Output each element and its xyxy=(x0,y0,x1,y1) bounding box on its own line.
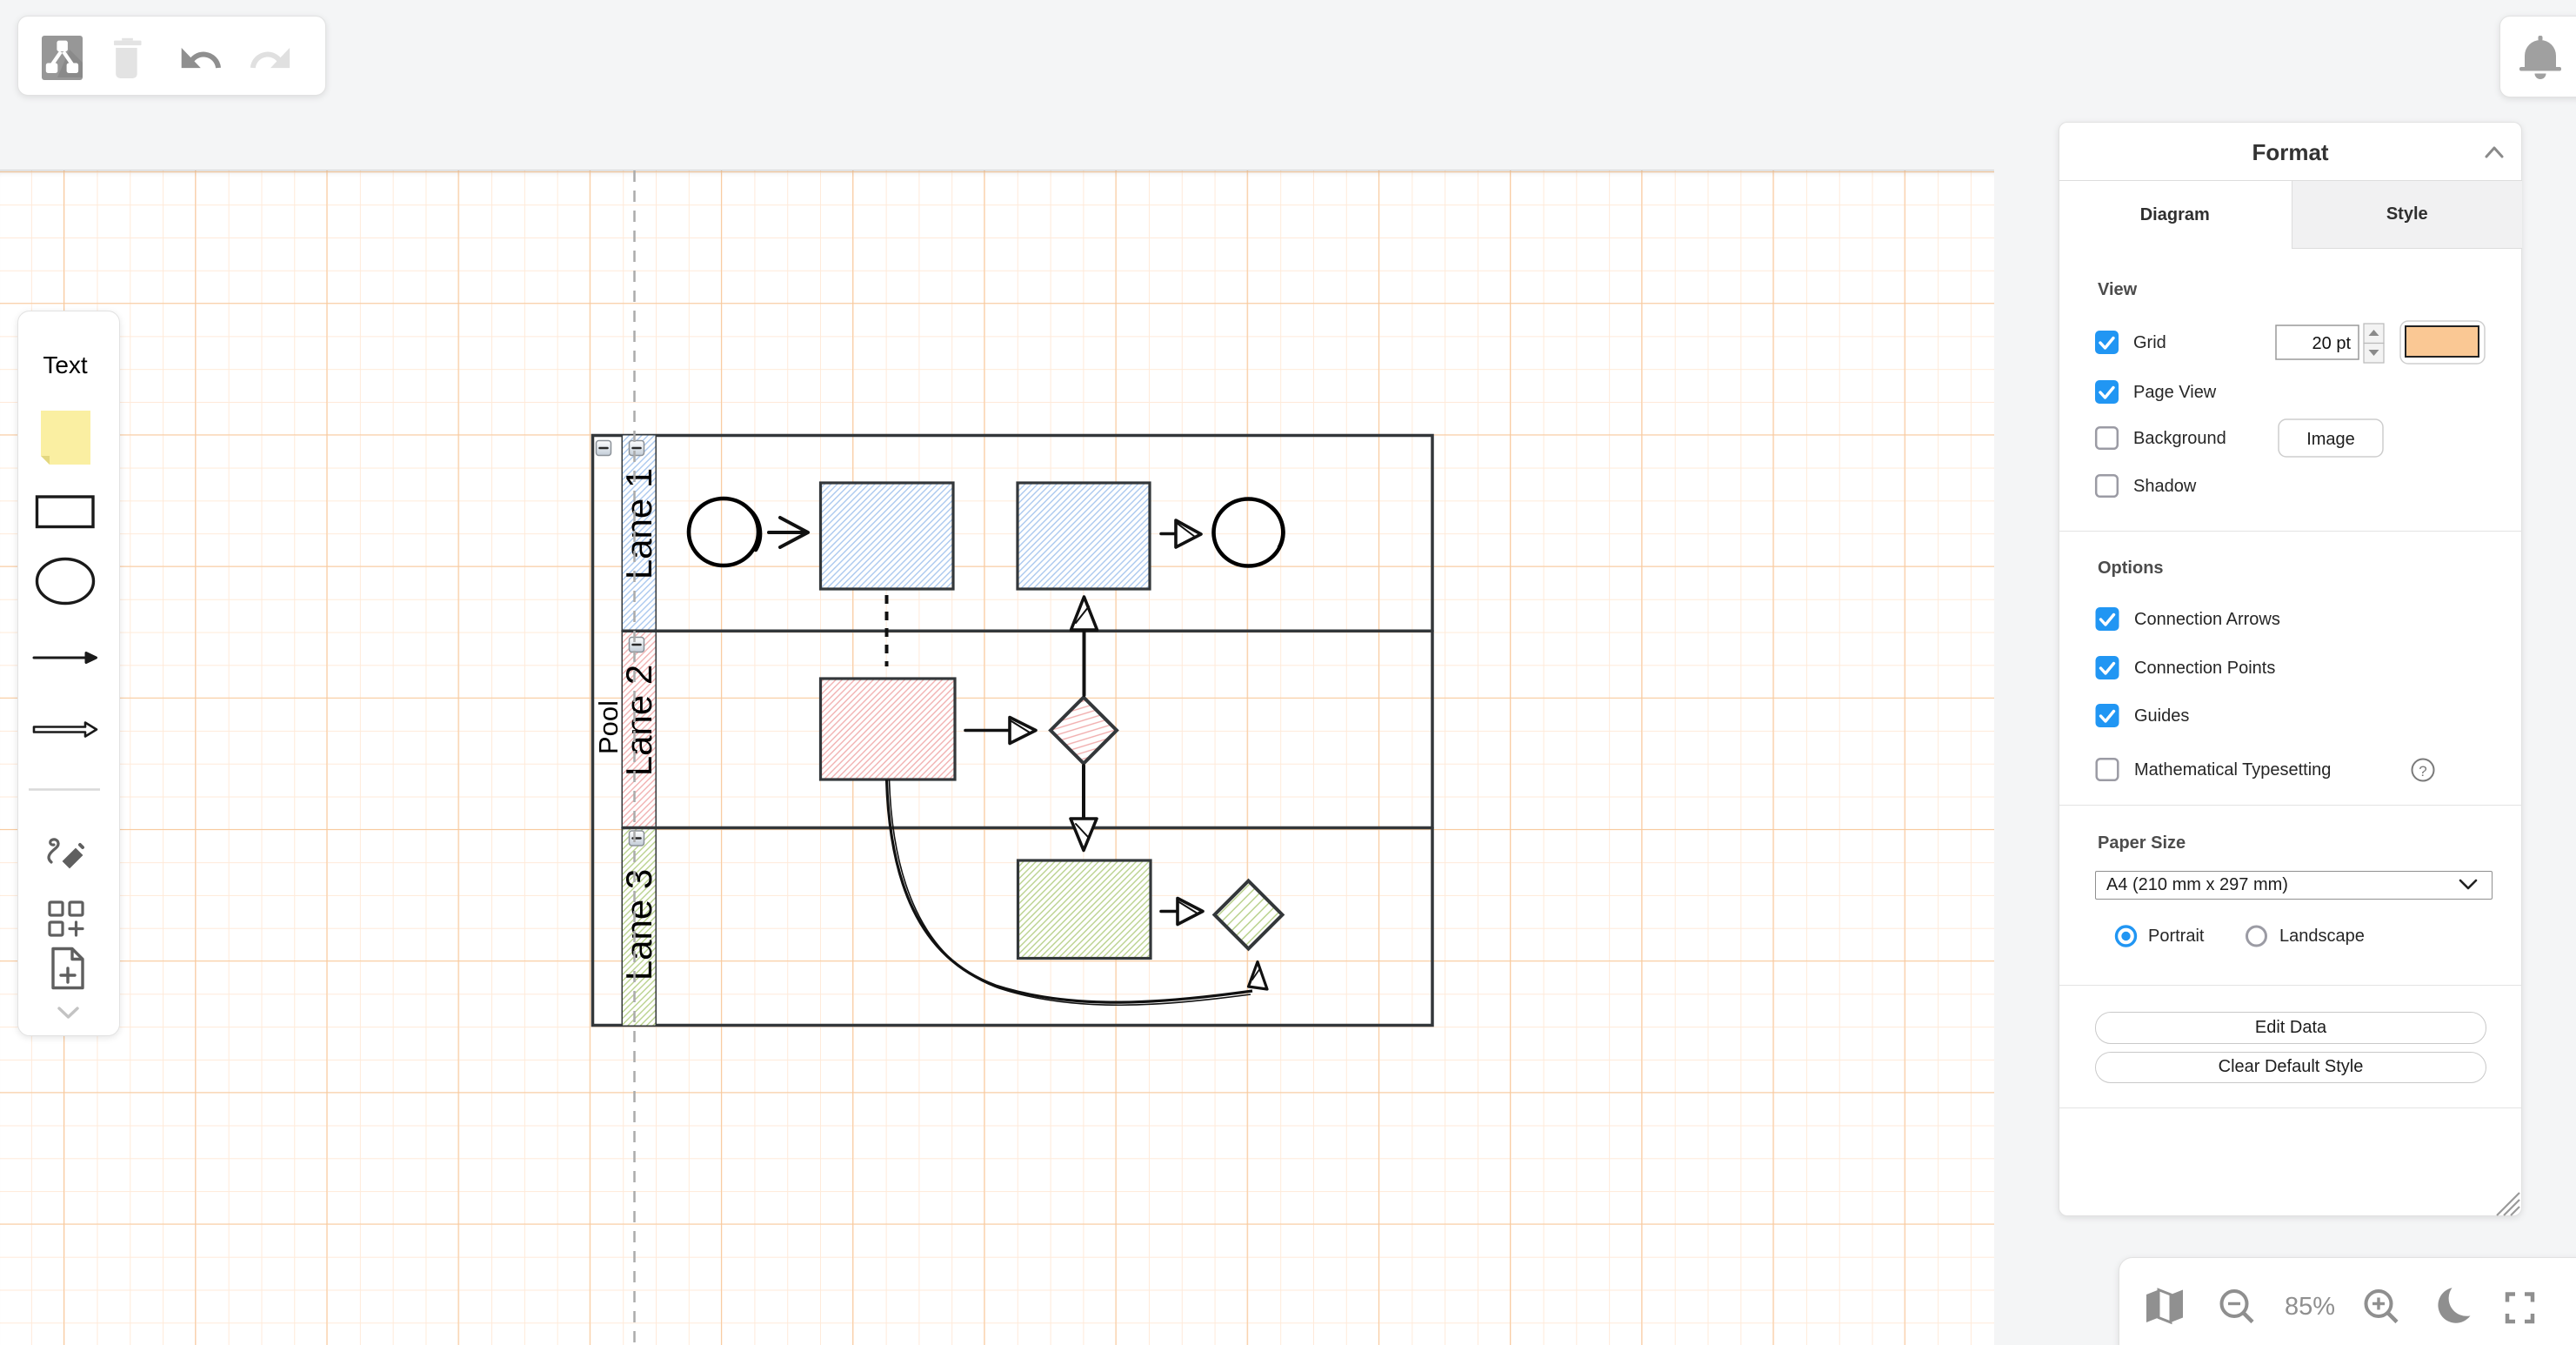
svg-text:20 pt: 20 pt xyxy=(2312,334,2352,353)
svg-text:?: ? xyxy=(2419,763,2426,780)
svg-text:Image: Image xyxy=(2306,430,2355,449)
svg-text:Lane 3: Lane 3 xyxy=(618,869,659,980)
svg-text:Text: Text xyxy=(43,351,88,378)
svg-text:Lane 1: Lane 1 xyxy=(618,468,659,579)
svg-text:Lane 2: Lane 2 xyxy=(618,665,659,776)
